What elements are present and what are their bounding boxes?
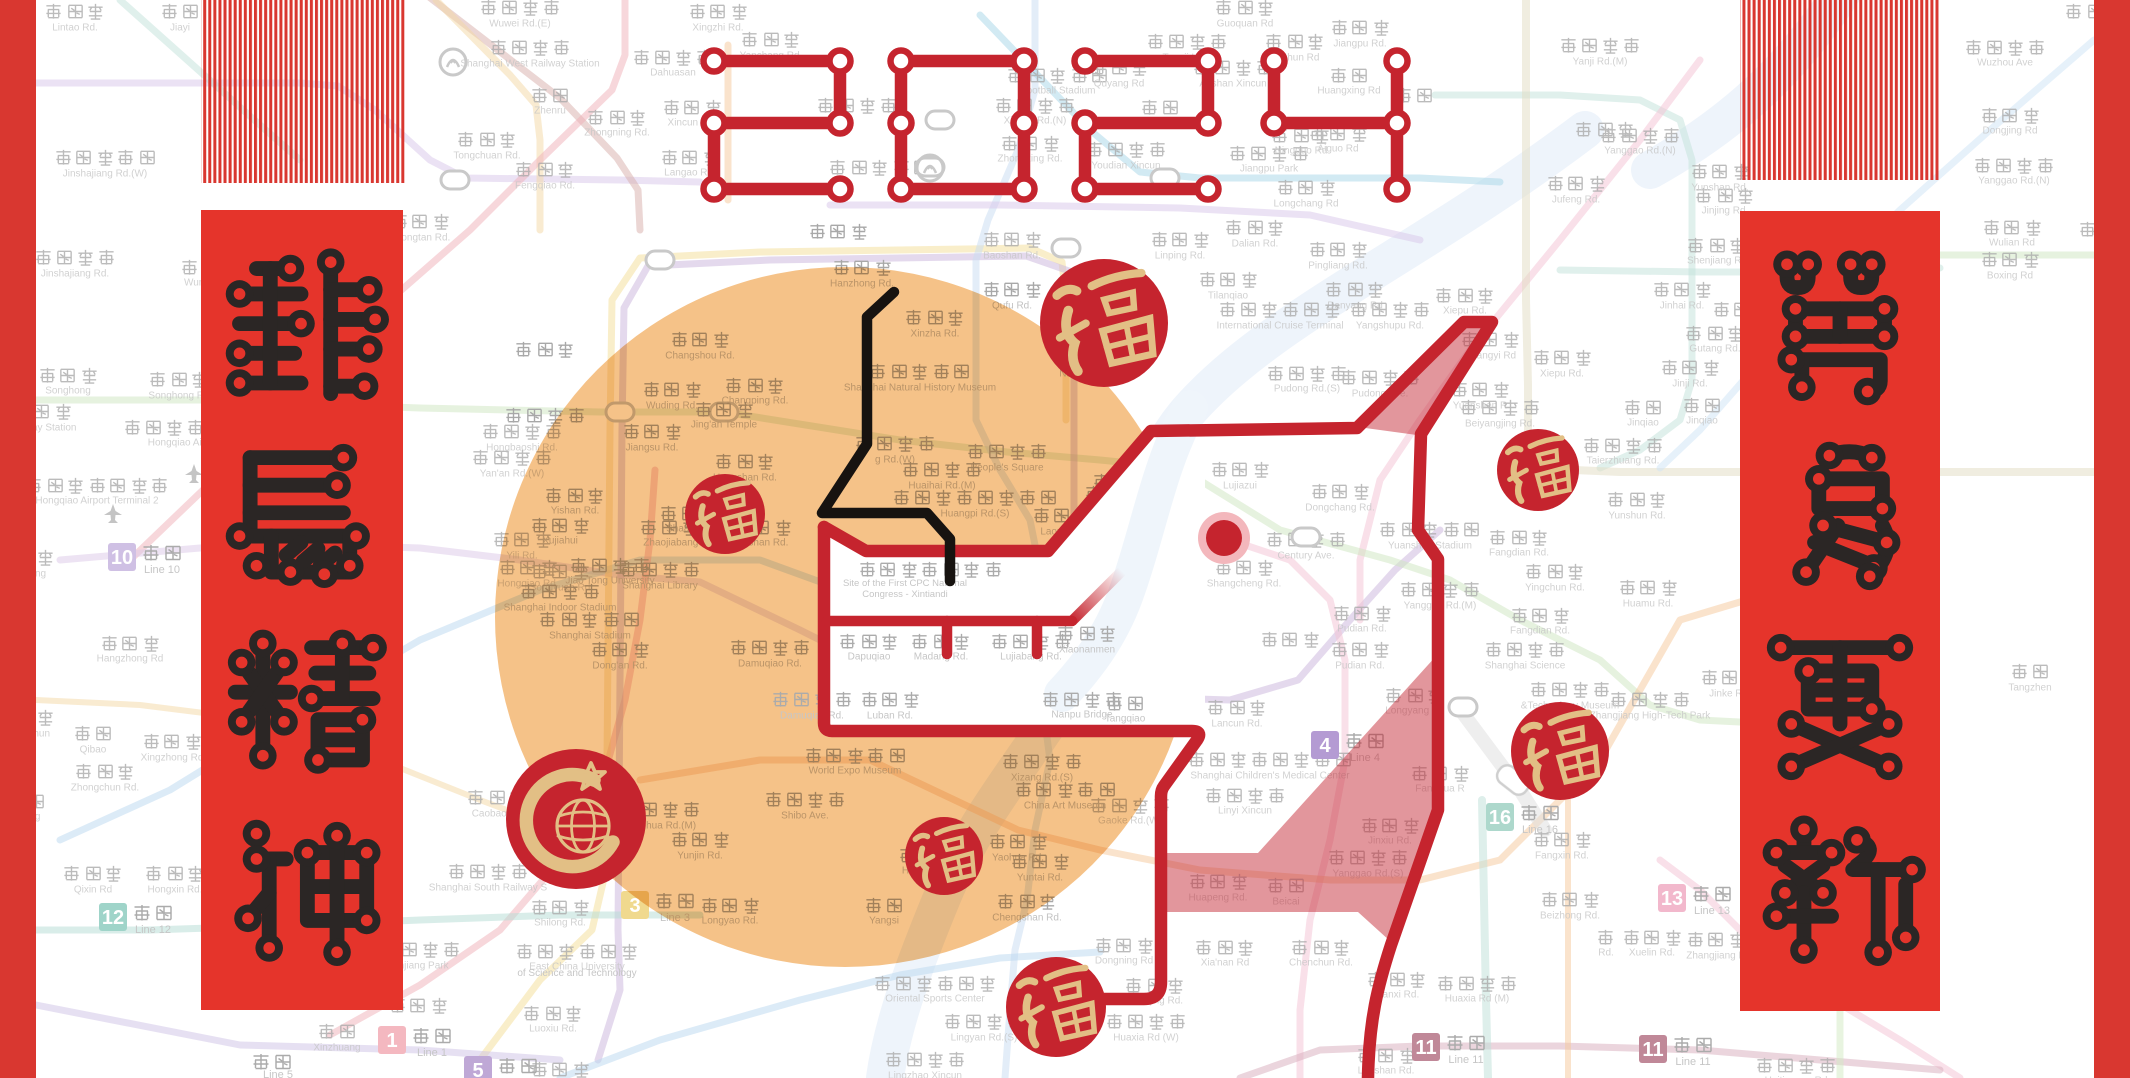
svg-text:Wulian Rd: Wulian Rd <box>1989 238 2035 249</box>
svg-text:Line 11: Line 11 <box>1448 1054 1483 1066</box>
svg-text:Tilanqiao: Tilanqiao <box>1208 291 1249 302</box>
svg-text:Guoquan Rd: Guoquan Rd <box>1217 19 1274 30</box>
svg-text:Huangxing Rd: Huangxing Rd <box>1317 86 1380 97</box>
svg-text:Lujiabang Rd.: Lujiabang Rd. <box>1000 652 1062 663</box>
svg-text:Fangxin Rd.: Fangxin Rd. <box>1535 851 1589 862</box>
svg-text:Dongchang Rd.: Dongchang Rd. <box>1305 503 1375 514</box>
svg-text:Xingzhong Rd: Xingzhong Rd <box>141 753 204 764</box>
svg-text:Congress - Xintiandi: Congress - Xintiandi <box>862 589 948 600</box>
svg-text:Dongjing Rd: Dongjing Rd <box>1982 126 2037 137</box>
svg-text:Taierzhuang Rd.: Taierzhuang Rd. <box>1587 456 1660 467</box>
svg-text:Football Stadium: Football Stadium <box>1020 86 1095 97</box>
svg-text:Shilong Rd.: Shilong Rd. <box>534 918 586 929</box>
svg-text:1: 1 <box>386 1030 397 1052</box>
svg-text:Rd.: Rd. <box>1598 948 1614 959</box>
svg-text:Yangshupu Rd.: Yangshupu Rd. <box>1356 321 1424 332</box>
svg-text:Huaxia Rd (M): Huaxia Rd (M) <box>1445 994 1509 1005</box>
svg-text:Zhongchun Rd.: Zhongchun Rd. <box>71 783 139 794</box>
svg-text:Jiangpu Rd.: Jiangpu Rd. <box>1333 39 1386 50</box>
svg-text:Wuzhou Ave: Wuzhou Ave <box>1977 58 2033 69</box>
svg-text:Shangcheng Rd.: Shangcheng Rd. <box>1207 579 1282 590</box>
svg-text:Chenchun Rd.: Chenchun Rd. <box>1289 958 1353 969</box>
svg-text:12: 12 <box>102 907 124 929</box>
svg-text:Qixin Rd: Qixin Rd <box>74 885 112 896</box>
svg-text:Jinqiao: Jinqiao <box>1627 418 1659 429</box>
svg-text:Dapuqiao: Dapuqiao <box>848 652 891 663</box>
svg-text:Zhangjiang R: Zhangjiang R <box>1686 951 1745 962</box>
svg-text:Songhong Rd: Songhong Rd <box>148 391 209 402</box>
svg-text:Xiepu Rd.: Xiepu Rd. <box>1443 306 1487 317</box>
svg-text:Line 1: Line 1 <box>417 1047 447 1059</box>
svg-text:10: 10 <box>111 547 133 569</box>
svg-text:Luban Rd.: Luban Rd. <box>867 711 913 722</box>
svg-text:Yingchun Rd.: Yingchun Rd. <box>1525 583 1585 594</box>
svg-text:Jufeng Rd.: Jufeng Rd. <box>1552 195 1600 206</box>
svg-text:Jinqiao: Jinqiao <box>1686 416 1718 427</box>
svg-text:Wuwei Rd.(E): Wuwei Rd.(E) <box>489 19 551 30</box>
svg-text:Line 12: Line 12 <box>135 924 171 936</box>
svg-text:Luoxiu Rd.: Luoxiu Rd. <box>529 1024 577 1035</box>
svg-text:Jinhai Rd.: Jinhai Rd. <box>1660 301 1704 312</box>
svg-text:Gutang Rd.: Gutang Rd. <box>1689 344 1740 355</box>
svg-text:Lintao Rd.: Lintao Rd. <box>52 23 98 34</box>
svg-text:Beizhong Rd.: Beizhong Rd. <box>1540 911 1600 922</box>
svg-text:Baoshan Rd.: Baoshan Rd. <box>983 251 1041 262</box>
svg-text:Lingyan Rd.(S): Lingyan Rd.(S) <box>951 1033 1018 1044</box>
svg-text:4: 4 <box>1319 735 1331 757</box>
svg-text:Fangdian Rd.: Fangdian Rd. <box>1489 548 1549 559</box>
svg-text:Jiayi: Jiayi <box>170 23 190 34</box>
svg-text:Huaxia Rd (W): Huaxia Rd (W) <box>1113 1033 1179 1044</box>
svg-text:Shanghai West Railway Station: Shanghai West Railway Station <box>460 59 599 70</box>
svg-text:Yuanshen R: Yuanshen R <box>1453 401 1508 412</box>
svg-text:Xiepu Rd.: Xiepu Rd. <box>1540 369 1584 380</box>
svg-text:11: 11 <box>1642 1039 1663 1061</box>
svg-text:Yanji Rd.(M): Yanji Rd.(M) <box>1573 57 1628 68</box>
svg-text:Xia'nan Rd: Xia'nan Rd <box>1201 958 1250 969</box>
svg-text:Tangzhen: Tangzhen <box>2008 683 2051 694</box>
svg-text:Quyang Rd: Quyang Rd <box>1094 79 1145 90</box>
svg-text:Dahuasan: Dahuasan <box>650 68 696 79</box>
svg-text:16: 16 <box>1489 807 1511 829</box>
svg-text:Huamu Rd.: Huamu Rd. <box>1623 599 1674 610</box>
svg-text:11: 11 <box>1415 1037 1436 1059</box>
svg-text:13: 13 <box>1661 888 1683 910</box>
svg-text:Jinshajiang Rd.: Jinshajiang Rd. <box>41 269 109 280</box>
svg-text:Qibao: Qibao <box>80 745 107 756</box>
svg-text:Boxing Rd: Boxing Rd <box>1987 271 2033 282</box>
svg-text:Jinshajiang Rd.(W): Jinshajiang Rd.(W) <box>63 169 147 180</box>
svg-text:of Science and Technology: of Science and Technology <box>517 968 636 979</box>
svg-text:Line 5: Line 5 <box>263 1069 293 1078</box>
svg-text:Tongchuan Rd.: Tongchuan Rd. <box>453 151 520 162</box>
svg-text:Xiaonanmen: Xiaonanmen <box>1059 645 1115 656</box>
svg-text:Yanggao Rd.(N): Yanggao Rd.(N) <box>1604 146 1676 157</box>
svg-text:Line 11: Line 11 <box>1675 1056 1710 1068</box>
svg-text:Lujiazui: Lujiazui <box>1223 481 1257 492</box>
svg-text:International Cruise Terminal: International Cruise Terminal <box>1216 321 1343 332</box>
svg-text:Tangqiao: Tangqiao <box>1105 714 1146 725</box>
svg-text:Beiyangjing Rd.: Beiyangjing Rd. <box>1465 419 1535 430</box>
svg-text:Lancun Rd.: Lancun Rd. <box>1211 719 1262 730</box>
svg-text:Line 10: Line 10 <box>144 564 180 576</box>
svg-text:Line 16: Line 16 <box>1522 824 1558 836</box>
svg-text:Line 13: Line 13 <box>1694 905 1730 917</box>
svg-text:5: 5 <box>472 1060 483 1078</box>
svg-text:Yunshan Rd.: Yunshan Rd. <box>1691 183 1748 194</box>
svg-text:Longchang Rd: Longchang Rd <box>1273 199 1338 210</box>
svg-text:Hongxin Rd.: Hongxin Rd. <box>147 885 202 896</box>
svg-text:Aiguo Rd: Aiguo Rd <box>1317 144 1358 155</box>
svg-text:Century Ave.: Century Ave. <box>1277 551 1334 562</box>
svg-text:Dongning Rd: Dongning Rd <box>1095 956 1153 967</box>
svg-text:Linyi Xincun: Linyi Xincun <box>1218 806 1272 817</box>
svg-text:Xinzhuang: Xinzhuang <box>313 1043 360 1054</box>
svg-text:Pudian Rd.: Pudian Rd. <box>1337 624 1386 635</box>
svg-text:Shenjiang Rd: Shenjiang Rd <box>1687 256 1747 267</box>
svg-text:Madang Rd.: Madang Rd. <box>914 652 968 663</box>
svg-text:Shanghai Science: Shanghai Science <box>1485 661 1566 672</box>
svg-text:Yunshun Rd.: Yunshun Rd. <box>1608 511 1665 522</box>
svg-text:Zhenru: Zhenru <box>534 106 566 117</box>
svg-text:Xingzhi Rd.: Xingzhi Rd. <box>692 23 743 34</box>
svg-text:Yanggao Rd.(N): Yanggao Rd.(N) <box>1978 176 2050 187</box>
svg-text:Youdian Xincun: Youdian Xincun <box>1091 161 1160 172</box>
svg-text:Zhangjiang High-Tech Park: Zhangjiang High-Tech Park <box>1590 711 1712 722</box>
svg-text:Damuqiao Rd.: Damuqiao Rd. <box>780 711 844 722</box>
svg-text:Songhong: Songhong <box>45 386 91 397</box>
svg-text:Oriental Sports Center: Oriental Sports Center <box>885 994 985 1005</box>
svg-text:Pudong Rd.(S): Pudong Rd.(S) <box>1274 384 1340 395</box>
svg-text:Fengqiao Rd.: Fengqiao Rd. <box>515 181 575 192</box>
svg-text:Hongqiao Airport Terminal 2: Hongqiao Airport Terminal 2 <box>35 496 159 507</box>
svg-text:Xuelin Rd.: Xuelin Rd. <box>1629 948 1675 959</box>
svg-text:Zhongning Rd.: Zhongning Rd. <box>584 128 650 139</box>
svg-text:Jinji Rd.: Jinji Rd. <box>1672 379 1708 390</box>
svg-text:Pudian Rd.: Pudian Rd. <box>1335 661 1384 672</box>
svg-text:Linping Rd.: Linping Rd. <box>1155 251 1206 262</box>
svg-text:Dalian Rd.: Dalian Rd. <box>1232 239 1279 250</box>
svg-text:Lingzhao Xincun: Lingzhao Xincun <box>888 1071 962 1078</box>
svg-text:Hangzhong Rd: Hangzhong Rd <box>97 654 164 665</box>
svg-text:Pingliang Rd.: Pingliang Rd. <box>1308 261 1367 272</box>
svg-text:Fangdian Rd.: Fangdian Rd. <box>1510 626 1570 637</box>
svg-text:Shanghai South Railway S: Shanghai South Railway S <box>429 883 548 894</box>
svg-text:Jiangpu Park: Jiangpu Park <box>1240 164 1299 175</box>
